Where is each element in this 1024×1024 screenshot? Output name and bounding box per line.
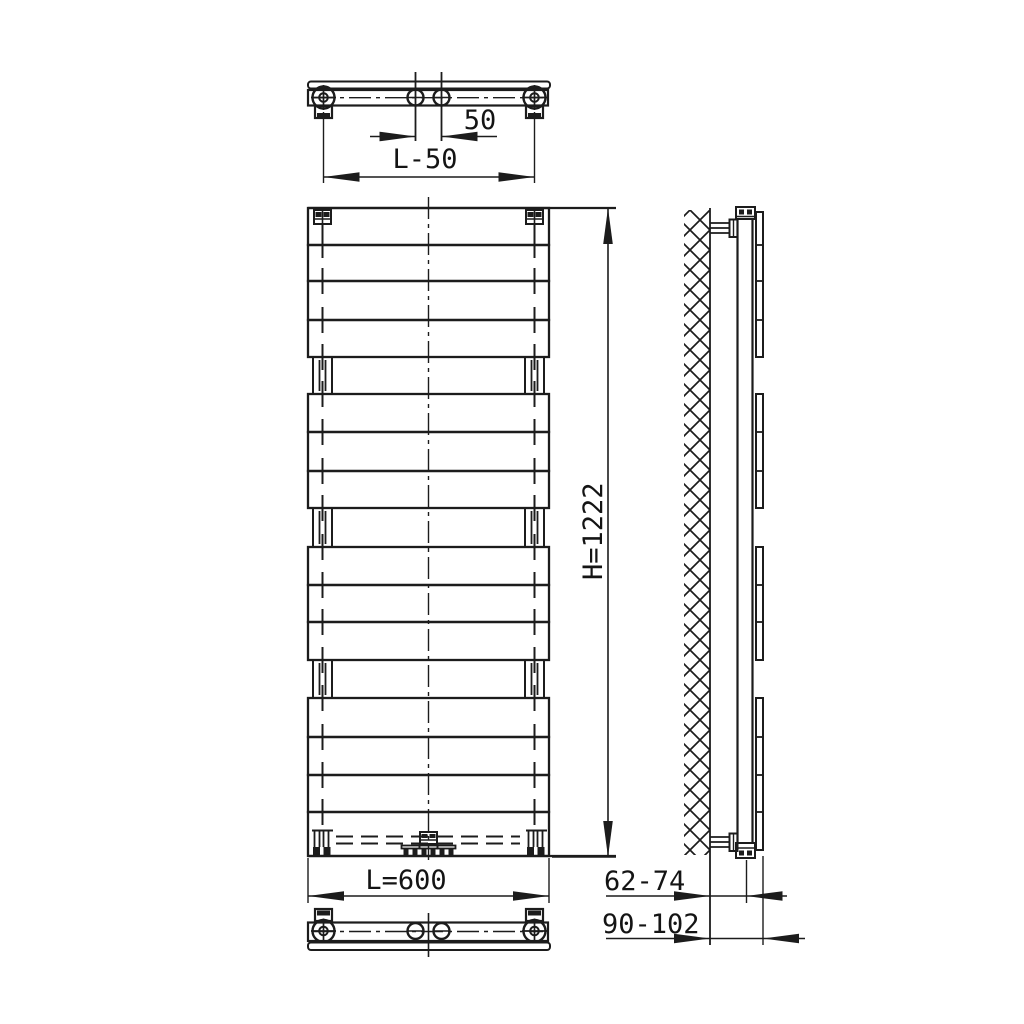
- center-fitting: [430, 834, 436, 838]
- wall-hatch: [684, 210, 710, 855]
- top-fitting: [739, 210, 744, 215]
- dimension-arrow: [324, 172, 360, 182]
- radiator-technical-drawing: 50 L-50 H=1222 L=600 62-74 90-102: [0, 0, 1024, 1024]
- dim-label-width: L=600: [365, 865, 446, 896]
- wall-bracket-pad: [528, 212, 534, 217]
- dimension-arrow: [763, 934, 799, 944]
- dim-label-wall-to-pipe: 62-74: [604, 866, 685, 897]
- wall-bracket-pad: [316, 212, 322, 217]
- panel-edge-strip: [756, 698, 763, 850]
- panel-edge-strip: [756, 212, 763, 357]
- top-view-panel-strip: [308, 82, 550, 89]
- dimension-arrow: [603, 208, 613, 244]
- dim-label-height: H=1222: [578, 482, 609, 580]
- bottom-view: [308, 909, 550, 957]
- floor-bracket-foot: [527, 847, 534, 856]
- dimension-arrow: [308, 891, 344, 901]
- dimension-arrow: [499, 172, 535, 182]
- wall-bracket-pad: [324, 212, 330, 217]
- dimension-arrow: [747, 891, 783, 901]
- center-fitting-foot: [402, 846, 420, 849]
- dim-label-mounting-width: L-50: [392, 144, 457, 175]
- bottom-fitting: [747, 851, 752, 856]
- bottom-fitting: [739, 851, 744, 856]
- valve-body: [528, 911, 541, 916]
- floor-bracket-foot: [313, 847, 320, 856]
- valve-body: [317, 911, 330, 916]
- center-fitting: [422, 834, 428, 838]
- dimension-arrow: [513, 891, 549, 901]
- floor-bracket-foot: [538, 847, 545, 856]
- front-view: [308, 197, 616, 860]
- center-fitting-foot: [438, 846, 456, 849]
- dim-label-wall-to-front: 90-102: [602, 909, 700, 940]
- floor-bracket-foot: [324, 847, 331, 856]
- side-view: [684, 207, 763, 945]
- dimension-labels: 50 L-50 H=1222 L=600 62-74 90-102: [365, 105, 699, 940]
- dim-label-pipe-spacing: 50: [464, 105, 497, 136]
- panel-edge-strip: [756, 547, 763, 660]
- panel-edge-strip: [756, 394, 763, 508]
- dimension-arrow: [380, 132, 416, 142]
- top-fitting: [747, 210, 752, 215]
- top-view: [308, 72, 550, 141]
- dimension-arrow: [603, 821, 613, 857]
- bottom-fitting: [736, 843, 755, 858]
- wall-bracket-pad: [536, 212, 542, 217]
